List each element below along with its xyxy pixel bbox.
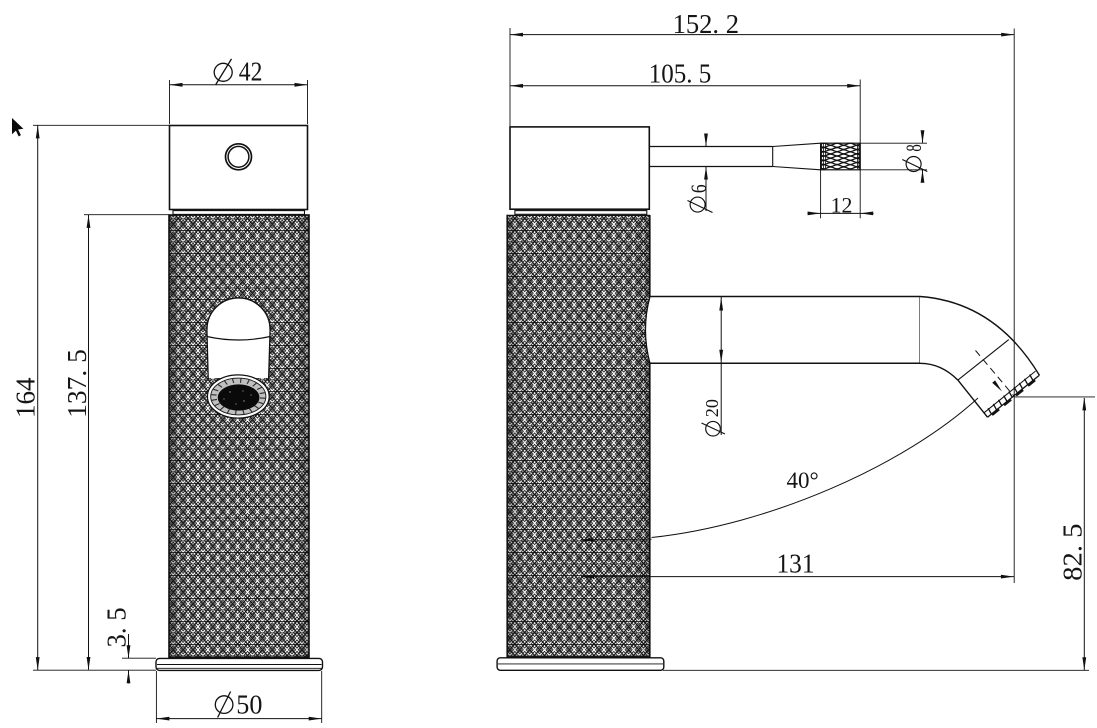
svg-text:8: 8 bbox=[901, 144, 926, 151]
svg-text:131: 131 bbox=[777, 547, 815, 578]
svg-text:40°: 40° bbox=[787, 468, 819, 493]
svg-text:50: 50 bbox=[236, 689, 262, 720]
svg-text:6: 6 bbox=[686, 184, 711, 193]
svg-text:20: 20 bbox=[702, 399, 722, 417]
svg-text:82. 5: 82. 5 bbox=[1057, 524, 1088, 581]
svg-text:137. 5: 137. 5 bbox=[61, 349, 92, 418]
svg-text:42: 42 bbox=[239, 56, 263, 87]
svg-text:152. 2: 152. 2 bbox=[673, 8, 739, 39]
svg-text:3. 5: 3. 5 bbox=[101, 607, 132, 647]
svg-text:164: 164 bbox=[10, 377, 41, 418]
svg-text:12: 12 bbox=[831, 193, 853, 218]
svg-text:105. 5: 105. 5 bbox=[649, 58, 712, 89]
